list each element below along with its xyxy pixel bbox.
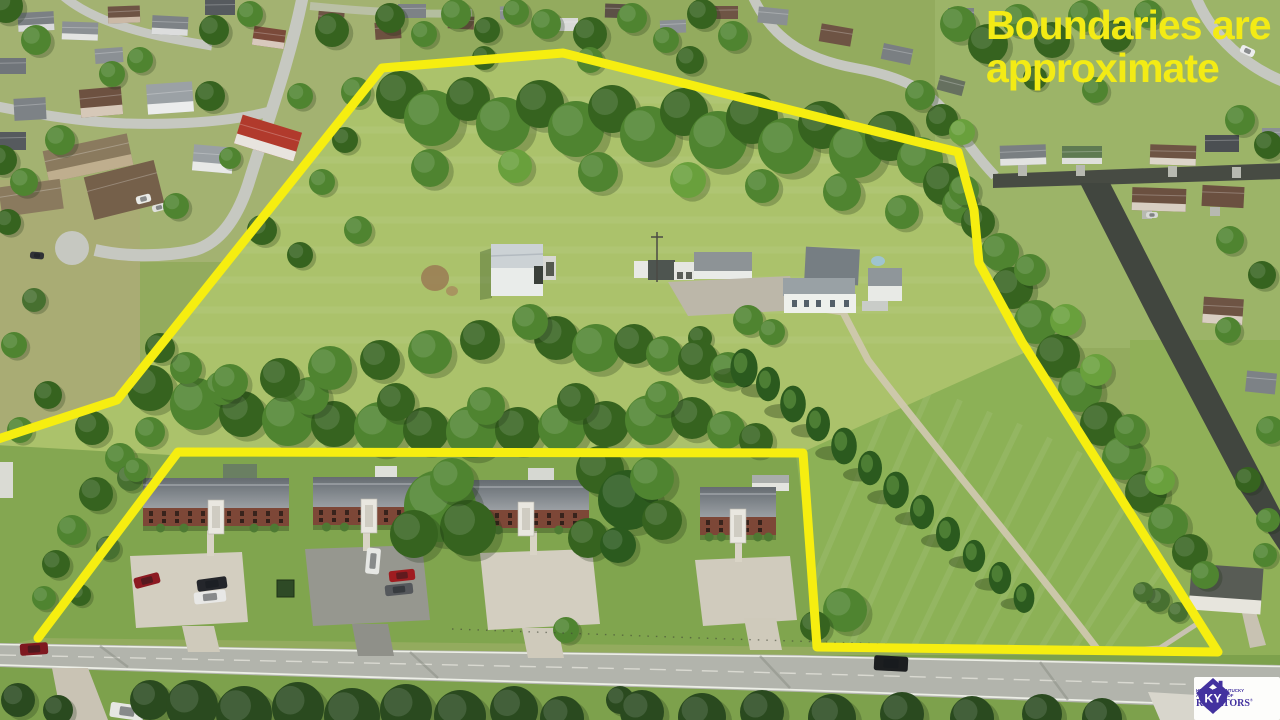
tree-highlight [1151,507,1173,529]
parking-pad-4 [695,556,797,626]
tree-highlight [449,80,473,104]
house [146,81,194,114]
conifer-highlight [913,499,925,517]
tree-highlight [624,110,655,141]
house [1000,144,1047,166]
window [175,519,179,523]
tree-highlight [107,445,124,462]
shrub [249,524,258,533]
conifer-highlight [861,455,873,473]
car-windows [28,645,41,653]
apartment-drive-2 [352,624,394,656]
tree-highlight [735,307,752,324]
parking-pad-1 [130,552,248,628]
annex-wall [868,286,902,301]
deck [862,301,888,311]
tree-highlight [907,82,924,99]
conifer-highlight [939,521,951,539]
boundary-disclaimer: Boundaries are approximate [986,4,1280,91]
tree-highlight [826,591,850,615]
house [1245,370,1277,394]
tree-highlight [581,155,603,177]
tree-highlight [1217,319,1231,333]
tree-highlight [943,9,963,29]
window [384,518,388,522]
conifer-highlight [783,390,796,409]
house-roof [757,6,789,25]
tree-highlight [137,419,154,436]
tree-highlight [533,11,550,28]
tree-highlight [470,390,491,411]
window [534,521,538,525]
tree-highlight [608,688,623,703]
shrub [717,533,726,542]
tree-highlight [44,552,59,567]
main-house-roof-lower [783,278,855,296]
tree-highlight [266,398,295,427]
window [345,510,349,515]
shrub [322,523,331,532]
tree-highlight [984,236,1005,257]
tree-highlight [888,198,907,217]
window [162,519,166,523]
house-roof [1205,135,1239,152]
conifer-highlight [992,565,1003,582]
tree-highlight [623,693,647,717]
house [1201,185,1244,208]
car [30,251,45,259]
tree-highlight [762,122,793,153]
tree-highlight [664,92,690,118]
tree-highlight [748,172,767,191]
window [149,511,153,516]
tree-highlight [1250,263,1265,278]
window [240,519,244,523]
tree-highlight [318,16,337,35]
conifer-highlight [1016,586,1026,602]
white-shed [634,261,649,278]
house [108,5,141,23]
window [175,511,179,516]
tree-highlight [220,690,251,720]
window [188,511,192,516]
window [508,513,512,518]
roof-ridge [1205,140,1239,141]
tree-highlight [408,94,439,125]
tree-highlight [289,244,303,258]
tree-highlight [560,386,581,407]
tree-highlight [826,176,847,197]
portico-stairs [212,506,220,528]
tree-highlight [346,218,361,233]
tree-highlight [1175,537,1195,557]
tree-highlight [1016,256,1034,274]
window [253,511,257,516]
apartment-building-4 [700,487,776,543]
tree-highlight [1193,563,1208,578]
tree-highlight [170,684,199,713]
window [201,519,205,523]
tree-highlight [678,48,693,63]
tree-highlight [45,697,62,714]
house-roof [205,0,235,15]
dark-roof-garage [648,260,675,280]
tree-highlight [394,514,420,540]
tree-highlight [1258,418,1273,433]
tree-highlight [555,619,569,633]
house [1062,146,1102,164]
car [20,642,49,656]
tree-highlight [1039,337,1063,361]
tree-highlight [681,343,703,365]
barn-leanto-interior [546,262,554,276]
tree-highlight [494,690,520,716]
disclaimer-line-2: approximate [986,47,1280,90]
aerial-listing-photo: Boundaries are approximate KY HEART OF K… [0,0,1280,720]
cul-de-sac [55,231,89,265]
window [240,511,244,516]
gravel-courtyard [668,276,800,316]
tree-highlight [501,152,520,171]
car-windows [396,572,408,580]
house-roof [13,97,46,121]
gray-roof-house-wall [694,271,752,279]
tree-highlight [515,307,535,327]
tree-highlight [47,127,64,144]
window [345,518,349,522]
tree-highlight [1083,405,1107,429]
window [332,510,336,515]
tree-highlight [1258,510,1271,523]
window [560,521,564,525]
realtor-association-logo: KY HEART OF KENTUCKY ASSOCIATION OF REAL… [1194,677,1280,720]
tree-highlight [413,23,427,37]
tree-highlight [263,361,285,383]
garage-door [686,272,692,279]
window [266,511,270,516]
tree-highlight [1025,697,1047,719]
tree-highlight [576,20,595,39]
roof-ridge [1062,151,1102,152]
car [874,655,909,672]
disclaimer-line-1: Boundaries are [986,4,1280,47]
tree-highlight [384,688,413,717]
tree-highlight [648,384,667,403]
dirt-patch-small [446,286,458,296]
annex-roof [868,268,902,286]
conifer-highlight [834,432,847,451]
tree-highlight [82,480,101,499]
tree-highlight [571,521,593,543]
registered-mark: ® [1250,697,1253,702]
shrub [270,524,279,533]
tree-highlight [520,84,546,110]
apartment-drive-1 [182,626,220,652]
car-windows [883,659,898,669]
tree-highlight [1052,306,1070,324]
house-wall [1062,158,1102,164]
shrub [753,533,762,542]
car-windows [203,593,218,602]
portico-stairs [365,505,373,527]
roof-ridge [0,137,26,138]
tree-highlight [23,27,40,44]
conifer-highlight [966,543,977,560]
tree-highlight [720,23,737,40]
window [319,510,323,515]
conifer-highlight [886,476,899,495]
window [201,511,205,516]
house [757,6,789,25]
tree-highlight [133,683,155,705]
window [560,513,564,518]
house [62,21,99,40]
tree-highlight [926,166,949,189]
tree-highlight [239,3,253,17]
house-wall [108,17,140,24]
tree-highlight [1116,416,1134,434]
barn-shadow [480,248,492,300]
tree-highlight [761,321,775,335]
tree-highlight [1147,467,1164,484]
tree-highlight [693,115,725,147]
tree-highlight [443,1,460,18]
tree-highlight [655,29,669,43]
tree-highlight [126,460,139,473]
house-wall [62,33,98,40]
tree-highlight [201,17,218,34]
car [1146,212,1158,218]
conifer-highlight [759,371,771,389]
portico-stairs [522,508,530,530]
apartment-building-1 [143,478,289,534]
conifer-highlight [734,353,748,373]
tree-highlight [617,327,639,349]
tree-highlight [24,290,37,303]
ky-heart-house-icon: KY [1194,677,1232,715]
tree-highlight [951,121,965,135]
tree-highlight [289,85,303,99]
tree-highlight [101,63,115,77]
tree-highlight [311,171,325,185]
tree-highlight [673,165,693,185]
tree-highlight [1227,107,1244,124]
tree-highlight [3,334,17,348]
window [279,519,283,523]
left-edge-building [0,462,13,498]
tree-highlight [4,686,23,705]
tree-highlight [1237,469,1251,483]
tree-highlight [197,83,214,100]
shrub [554,526,563,535]
window [719,520,723,525]
window [547,521,551,525]
window [758,528,762,532]
tree-highlight [165,195,179,209]
tree-highlight [552,105,583,136]
tree-highlight [414,152,435,173]
tree-highlight [690,328,703,341]
tree-highlight [1256,133,1271,148]
window [266,519,270,523]
window [227,519,231,523]
window [758,520,762,525]
tree-highlight [34,588,47,601]
shrub [764,533,773,542]
window [719,528,723,532]
tree-highlight [1082,356,1100,374]
window [332,518,336,522]
tree-highlight [476,19,490,33]
window [253,519,257,523]
tree-highlight [59,517,76,534]
tree-highlight [883,695,907,719]
window [534,513,538,518]
tree-highlight [221,149,233,161]
tree-highlight [1255,545,1268,558]
tree-highlight [380,75,406,101]
tree-highlight [742,426,761,445]
window [384,510,388,515]
tree-highlight [480,101,510,131]
garage-door [677,272,683,279]
tree-highlight [710,414,731,435]
house [13,97,46,121]
house [0,58,26,74]
window [279,511,283,516]
window [706,528,710,532]
tree-highlight [1017,303,1041,327]
window [706,520,710,525]
car-windows [393,586,406,594]
tree-highlight [603,530,623,550]
tree-highlight [380,386,401,407]
tree-highlight [444,504,475,535]
ky-monogram: KY [1204,692,1222,706]
house [152,15,189,36]
window [508,521,512,525]
shrub [179,524,188,533]
house-roof [0,58,26,74]
tree-highlight [411,333,435,357]
tree-highlight [276,686,305,715]
house [1132,187,1187,212]
shrub [340,523,349,532]
tree-highlight [463,323,485,345]
house [1150,144,1197,166]
shrub [705,533,714,542]
tree-highlight [12,170,27,185]
tree-highlight [633,459,657,483]
window [547,513,551,518]
tree-highlight [649,339,669,359]
tree-highlight [592,89,618,115]
dirt-patch [421,265,449,291]
tree-highlight [377,5,394,22]
window [227,511,231,516]
car [365,547,381,574]
aerial-photo [0,0,1280,720]
tree-highlight [363,343,385,365]
window [573,513,577,518]
car-windows [34,253,41,258]
house [79,86,123,118]
barn-door-opening [534,266,543,284]
window [149,519,153,523]
tree-highlight [215,367,235,387]
tree-highlight [743,693,767,717]
tree-highlight [1218,228,1233,243]
tree-highlight [619,5,636,22]
conifer-highlight [809,411,821,429]
window [162,511,166,516]
window [319,518,323,522]
tree-highlight [36,383,51,398]
tree-highlight [129,49,143,63]
pool [871,256,885,266]
window [188,519,192,523]
house [205,0,235,15]
house-roof [1245,370,1277,394]
parking-pad-3 [480,549,600,630]
tree-highlight [645,503,667,525]
car-windows [1149,213,1154,217]
tree-highlight [1170,604,1181,615]
tree-highlight [689,1,706,18]
house-roof [1201,185,1244,208]
apartment-drive-4 [744,618,782,650]
shrub [156,524,165,533]
tree-highlight [1135,584,1146,595]
tree-highlight [505,1,519,15]
tree-highlight [433,461,457,485]
house [1205,135,1239,152]
tree-highlight [833,128,863,158]
tree-highlight [311,349,335,373]
tree-highlight [576,328,602,354]
portico-stairs [734,515,742,537]
dumpster [277,580,294,597]
